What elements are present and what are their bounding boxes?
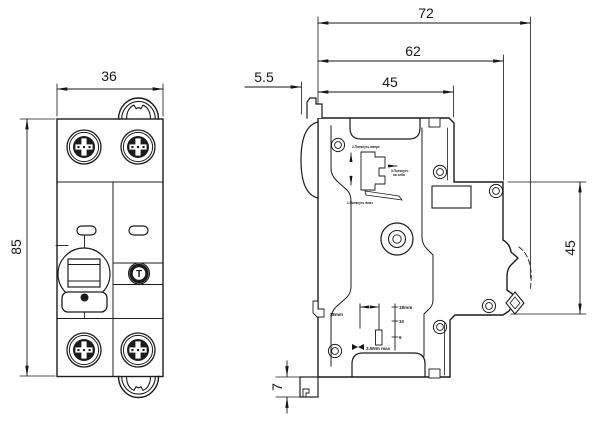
test-button-label: T bbox=[136, 269, 142, 280]
dim-45-top-label: 45 bbox=[382, 74, 398, 90]
dim-36-label: 36 bbox=[101, 68, 117, 84]
instruction-step2-text: 2.Потянуть вверх bbox=[352, 145, 380, 149]
instruction-step1-text: 1.Потянуть вниз bbox=[347, 201, 373, 205]
front-bezel-bulge bbox=[301, 122, 318, 198]
dim-72-label: 72 bbox=[418, 5, 434, 21]
top-din-clip bbox=[119, 98, 159, 119]
wire-size-mid-label: 10 bbox=[399, 319, 405, 324]
dim-45-right-label: 45 bbox=[562, 240, 578, 256]
wire-end bbox=[376, 330, 383, 345]
front-view: 36 85 bbox=[8, 68, 163, 398]
vent-slot-bottom bbox=[429, 369, 440, 378]
label-window-right bbox=[129, 226, 148, 235]
dim-5-5-label: 5.5 bbox=[254, 69, 274, 85]
toggle-indicator-dot bbox=[81, 294, 89, 302]
side-body-outline bbox=[318, 118, 518, 377]
side-view: 72 62 45 5.5 bbox=[245, 5, 586, 413]
front-height-dimension: 85 bbox=[8, 119, 55, 376]
test-button: T bbox=[129, 263, 150, 284]
toggle-switch bbox=[58, 248, 110, 319]
handle-protrusion-dimension: 5.5 bbox=[245, 69, 302, 114]
instruction-step3-text-line2: на себя bbox=[393, 173, 405, 177]
dim-85-label: 85 bbox=[8, 239, 24, 255]
front-width-dimension: 36 bbox=[57, 68, 163, 116]
wire-size-low-label: 6 bbox=[399, 335, 402, 340]
label-window-left bbox=[77, 226, 96, 235]
dimensional-drawing-canvas: 36 85 bbox=[0, 0, 600, 426]
strip-length-right-label: 18mm bbox=[399, 305, 412, 310]
front-depth-dimension: 45 bbox=[318, 74, 454, 117]
breaker-dimension-drawing: 36 85 bbox=[0, 0, 600, 426]
busbar-slot bbox=[432, 186, 471, 208]
bottom-front-foot bbox=[300, 377, 318, 397]
toggle-handle bbox=[68, 259, 100, 287]
vent-slot-top bbox=[429, 118, 440, 127]
dim-62-label: 62 bbox=[405, 43, 421, 59]
torque-label: 3.5Nm max bbox=[366, 346, 391, 351]
clip-lever-phantom-line bbox=[519, 247, 531, 291]
strip-length-left-label: 18mm bbox=[330, 312, 343, 317]
dim-7-label: 7 bbox=[269, 383, 285, 391]
top-front-tab bbox=[307, 98, 322, 118]
foot-height-dimension: 7 bbox=[269, 361, 303, 413]
bottom-din-clip bbox=[119, 377, 159, 398]
